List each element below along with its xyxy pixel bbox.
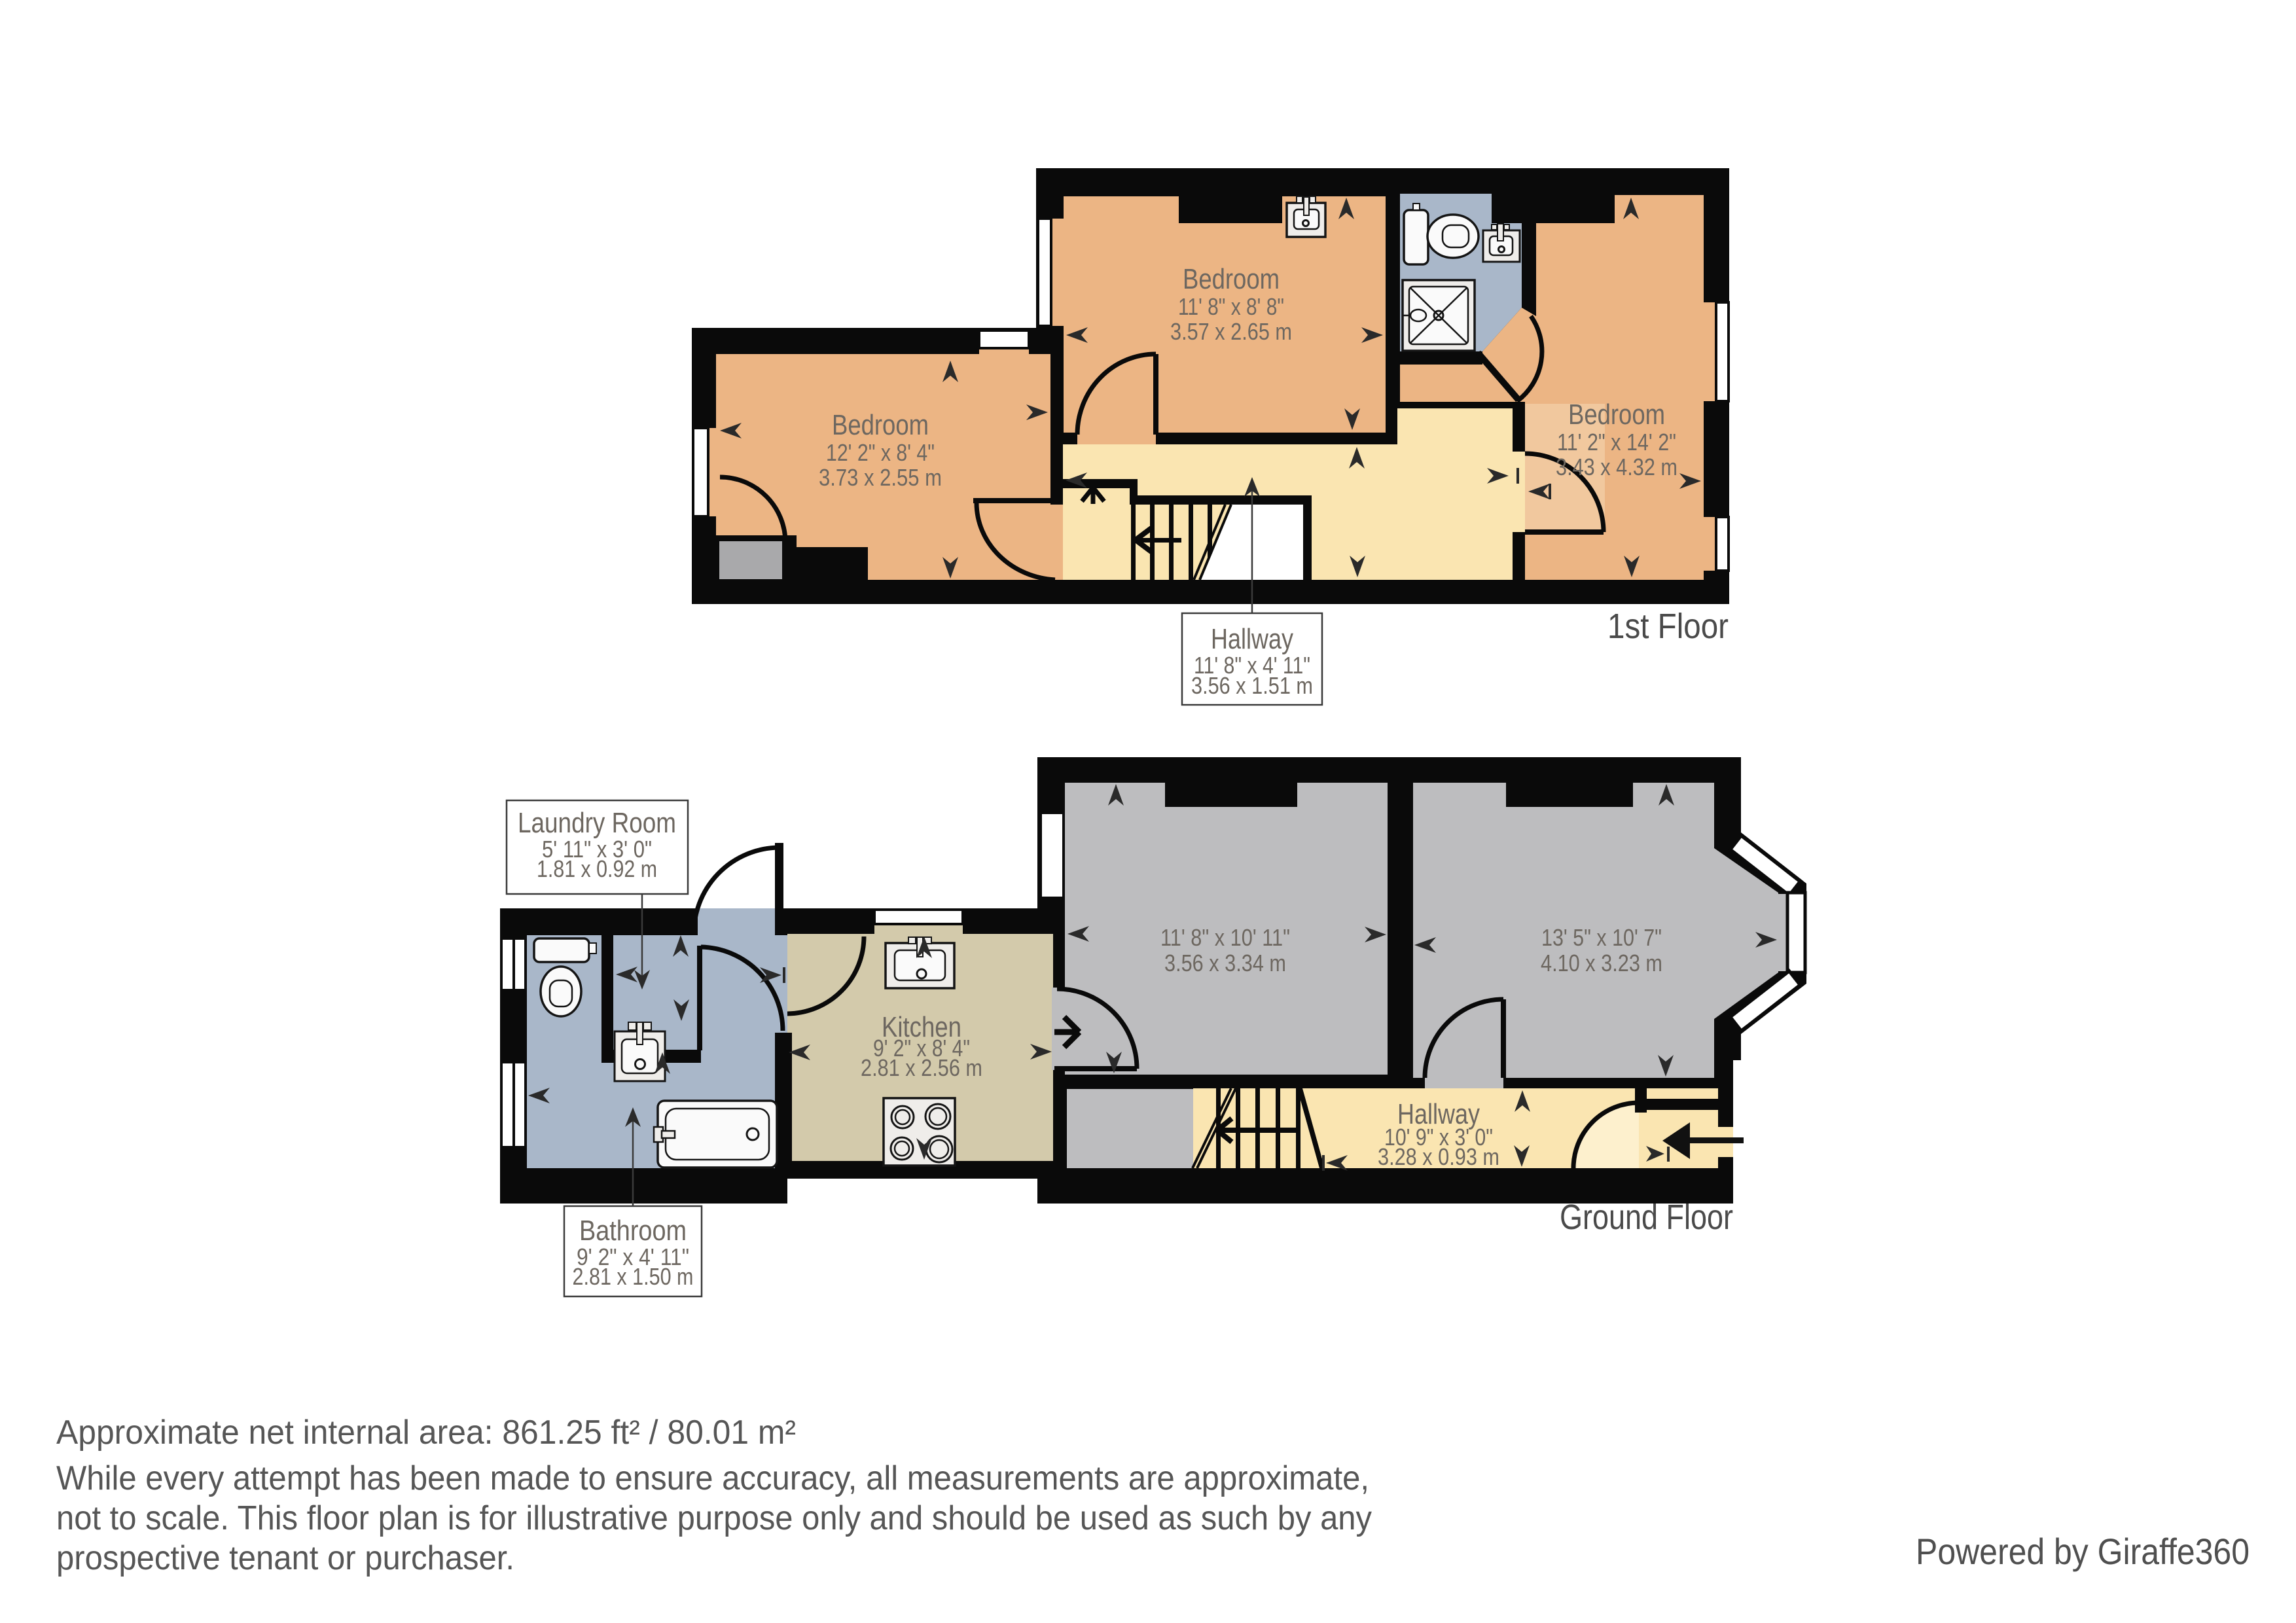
svg-text:Laundry Room: Laundry Room [518,807,676,839]
svg-text:Hallway: Hallway [1211,623,1293,655]
svg-text:1st Floor: 1st Floor [1607,607,1729,646]
svg-text:3.43 x 4.32 m: 3.43 x 4.32 m [1556,454,1677,480]
svg-text:12' 2" x 8' 4": 12' 2" x 8' 4" [826,439,935,466]
svg-text:3.56 x 1.51 m: 3.56 x 1.51 m [1191,672,1313,699]
svg-text:2.81 x 2.56 m: 2.81 x 2.56 m [861,1054,982,1081]
svg-text:prospective tenant or purchase: prospective tenant or purchaser. [56,1539,514,1577]
svg-text:11' 2" x 14' 2": 11' 2" x 14' 2" [1557,429,1676,455]
svg-text:11' 8" x 8' 8": 11' 8" x 8' 8" [1178,293,1284,320]
svg-text:Bedroom: Bedroom [1568,399,1665,431]
svg-text:11' 8" x 10' 11": 11' 8" x 10' 11" [1160,924,1290,951]
svg-text:Bedroom: Bedroom [1183,263,1280,295]
svg-text:While every attempt has been m: While every attempt has been made to ens… [56,1459,1369,1497]
svg-text:3.73 x 2.55 m: 3.73 x 2.55 m [819,464,942,491]
svg-text:2.81 x 1.50 m: 2.81 x 1.50 m [573,1263,694,1290]
svg-text:3.57 x 2.65 m: 3.57 x 2.65 m [1170,318,1292,345]
svg-text:Bathroom: Bathroom [579,1215,687,1247]
svg-text:Powered by Giraffe360: Powered by Giraffe360 [1916,1531,2250,1572]
svg-text:3.56 x 3.34 m: 3.56 x 3.34 m [1164,950,1286,976]
svg-text:3.28 x 0.93 m: 3.28 x 0.93 m [1378,1143,1499,1170]
svg-text:13' 5" x 10' 7": 13' 5" x 10' 7" [1541,924,1662,951]
svg-text:4.10 x 3.23 m: 4.10 x 3.23 m [1541,950,1662,976]
svg-text:Ground Floor: Ground Floor [1560,1198,1733,1237]
svg-text:Bedroom: Bedroom [832,409,929,441]
svg-text:1.81 x 0.92 m: 1.81 x 0.92 m [537,855,657,882]
svg-text:Approximate net internal area:: Approximate net internal area: 861.25 ft… [56,1414,796,1452]
svg-text:not to scale. This floor plan: not to scale. This floor plan is for ill… [56,1499,1372,1537]
